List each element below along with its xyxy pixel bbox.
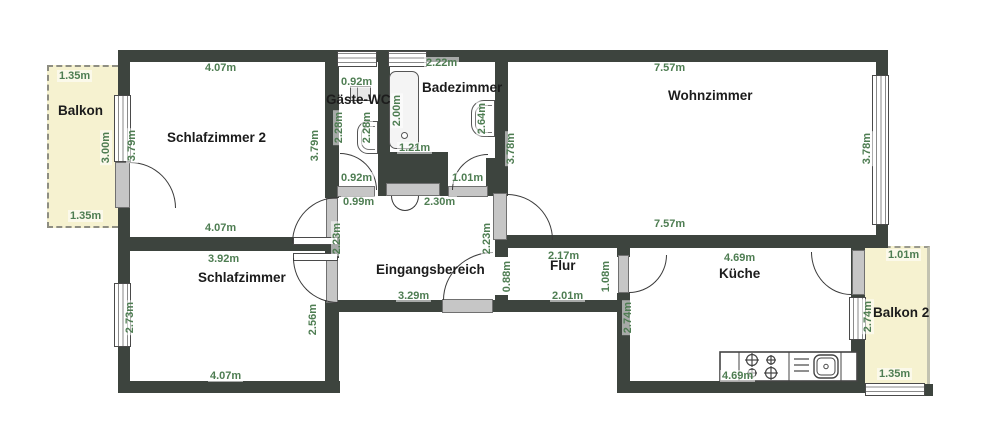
wall xyxy=(495,248,508,257)
dimension-label: 3.79m xyxy=(126,128,138,163)
dimension-label: 2.28m xyxy=(333,110,345,145)
door-sill xyxy=(386,183,440,196)
window xyxy=(872,75,889,225)
wall xyxy=(118,381,340,393)
dimension-label: 1.35m xyxy=(68,210,103,222)
dimension-label: 0.88m xyxy=(501,259,513,294)
dimension-label: 0.92m xyxy=(339,76,374,88)
dimension-label: 2.28m xyxy=(361,110,373,145)
room-label-schlafzimmer2: Schlafzimmer 2 xyxy=(167,130,266,145)
room-label-wohnzimmer: Wohnzimmer xyxy=(668,88,753,103)
window xyxy=(337,51,377,67)
dimension-label: 3.78m xyxy=(505,131,517,166)
dimension-label: 3.29m xyxy=(396,290,431,302)
door-sill xyxy=(618,255,629,293)
dimension-label: 3.92m xyxy=(206,253,241,265)
wall xyxy=(495,235,888,248)
door-arc xyxy=(130,162,176,208)
dimension-label: 1.35m xyxy=(877,368,912,380)
window xyxy=(388,51,427,67)
dimension-label: 2.56m xyxy=(307,302,319,337)
room-label-kueche: Küche xyxy=(719,266,760,281)
room-label-flur: Flur xyxy=(550,258,576,273)
dimension-label: 3.78m xyxy=(861,131,873,166)
dimension-label: 2.64m xyxy=(476,101,488,136)
dimension-label: 1.01m xyxy=(450,172,485,184)
dimension-label: 3.00m xyxy=(100,130,112,165)
door-sill xyxy=(852,250,865,295)
room-label-gaeste-wc: Gäste-WC xyxy=(326,92,391,107)
balcony-railing xyxy=(865,383,925,396)
room-label-schlafzimmer: Schlafzimmer xyxy=(198,270,286,285)
wall xyxy=(925,384,933,396)
dimension-label: 4.69m xyxy=(722,252,757,264)
room-label-balkon2: Balkon 2 xyxy=(873,305,929,320)
dimension-label: 2.74m xyxy=(622,300,634,335)
dimension-label: 2.23m xyxy=(481,221,493,256)
dimension-label: 3.79m xyxy=(309,128,321,163)
door-arc xyxy=(293,258,338,303)
room-label-eingangsbereich: Eingangsbereich xyxy=(376,262,485,277)
dimension-label: 4.69m xyxy=(720,370,755,382)
room-label-balkon: Balkon xyxy=(58,103,103,118)
entry-door-sill xyxy=(442,299,493,313)
dimension-label: 1.21m xyxy=(397,142,432,154)
dimension-label: 2.22m xyxy=(424,57,459,69)
dimension-label: 0.99m xyxy=(341,196,376,208)
double-door-arc xyxy=(405,196,419,211)
dimension-label: 7.57m xyxy=(652,218,687,230)
door-sill xyxy=(115,162,130,208)
wall xyxy=(617,381,865,393)
room-label-badezimmer: Badezimmer xyxy=(422,80,502,95)
dimension-label: 0.92m xyxy=(339,172,374,184)
dimension-label: 7.57m xyxy=(652,62,687,74)
dimension-label: 1.01m xyxy=(886,249,921,261)
wall xyxy=(325,303,339,393)
bathtub-drain xyxy=(401,132,408,139)
dimension-label: 2.00m xyxy=(391,93,403,128)
dimension-label: 4.07m xyxy=(208,370,243,382)
dimension-label: 4.07m xyxy=(203,62,238,74)
floor-plan: 1.35m 4.07m 0.92m 2.22m 7.57m 1.21m 0.92… xyxy=(0,0,981,443)
dimension-label: 2.01m xyxy=(550,290,585,302)
door-arc xyxy=(811,252,851,295)
door-sill xyxy=(493,193,507,240)
door-arc xyxy=(629,255,667,293)
door-arc xyxy=(507,194,553,240)
dimension-label: 1.35m xyxy=(57,70,92,82)
double-door-arc xyxy=(391,196,405,211)
dimension-label: 2.23m xyxy=(331,221,343,256)
dimension-label: 4.07m xyxy=(203,222,238,234)
wall xyxy=(495,50,508,193)
dimension-label: 1.08m xyxy=(600,259,612,294)
dimension-label: 2.30m xyxy=(422,196,457,208)
dimension-label: 2.73m xyxy=(124,300,136,335)
